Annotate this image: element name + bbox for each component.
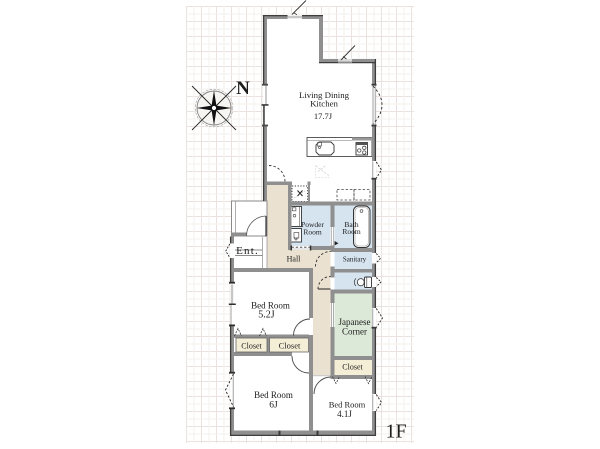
- svg-text:Corner: Corner: [342, 327, 367, 337]
- svg-text:w: w: [294, 237, 299, 243]
- svg-text:Japanese: Japanese: [339, 317, 371, 327]
- svg-text:17.7J: 17.7J: [314, 111, 333, 121]
- svg-text:Bed Room: Bed Room: [254, 390, 293, 400]
- svg-text:1F: 1F: [385, 421, 406, 443]
- svg-text:Closet: Closet: [241, 342, 262, 351]
- svg-text:Sanitary: Sanitary: [343, 256, 367, 264]
- svg-text:Kitchen: Kitchen: [310, 99, 338, 109]
- svg-text:6J: 6J: [269, 401, 278, 411]
- svg-text:Closet: Closet: [342, 363, 363, 372]
- svg-text:N: N: [236, 78, 250, 99]
- svg-text:5.2J: 5.2J: [258, 310, 275, 321]
- svg-text:Bed Room: Bed Room: [329, 400, 366, 410]
- svg-text:Room: Room: [342, 227, 361, 236]
- svg-text:Closet: Closet: [279, 341, 301, 351]
- svg-text:Hall: Hall: [287, 255, 302, 264]
- svg-text:4.1J: 4.1J: [337, 409, 352, 419]
- svg-text:Ent.: Ent.: [236, 245, 259, 257]
- svg-text:Room: Room: [303, 228, 322, 237]
